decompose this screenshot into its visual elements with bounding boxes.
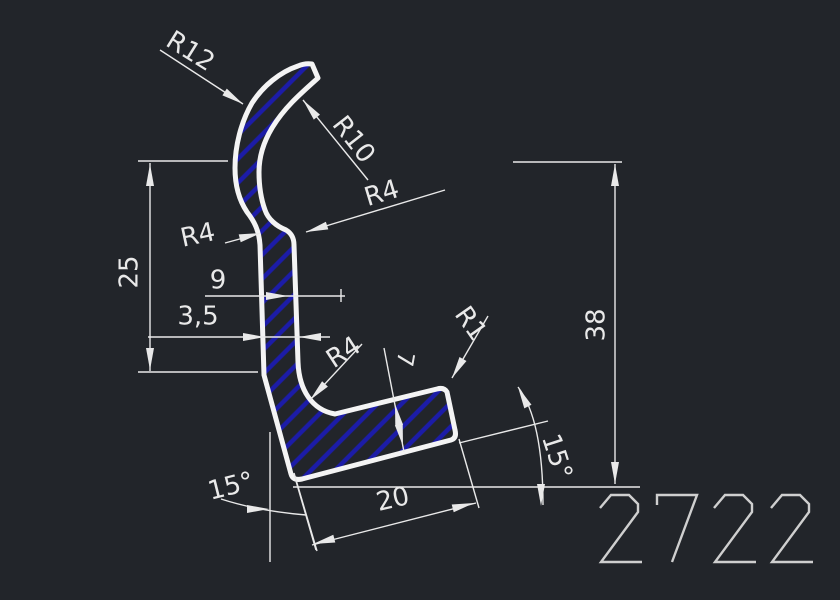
dimension-3-5: 3,5	[148, 302, 330, 342]
arrowhead	[611, 164, 619, 186]
digit-2	[600, 495, 642, 562]
leader-r12: R12	[160, 25, 243, 104]
r1-label: R1	[448, 301, 492, 347]
arrowhead	[306, 222, 328, 232]
r10-label: R10	[326, 110, 381, 169]
profile-number: 2722	[600, 495, 813, 562]
leader-r4-left: R4	[178, 217, 261, 254]
leader-r4-top: R4	[306, 174, 445, 232]
leader-r10: R10	[303, 100, 381, 180]
arrowhead	[222, 89, 243, 104]
drawing-svg: 25 38 9 3,5 R4 R4 R10	[0, 0, 840, 600]
digit-7	[657, 495, 697, 562]
arrowhead	[452, 357, 467, 378]
arrowhead	[518, 387, 532, 408]
dim-9-label: 9	[210, 266, 227, 296]
arrowhead	[299, 333, 321, 341]
leader-r4-foot: R4	[310, 331, 366, 400]
digit-2	[771, 495, 813, 562]
extension-line	[294, 473, 317, 551]
arrowhead	[611, 462, 619, 484]
arrowhead	[146, 348, 154, 370]
extension-line	[459, 439, 479, 508]
cad-canvas: 25 38 9 3,5 R4 R4 R10	[0, 0, 840, 600]
arrowhead	[313, 535, 335, 544]
angle-15-left-label: 15°	[205, 466, 257, 506]
angle-arc	[221, 499, 306, 515]
dim-25-label: 25	[115, 255, 145, 288]
dim-3-5-label: 3,5	[177, 302, 218, 332]
arrowhead	[452, 503, 474, 512]
leader-r1: R1	[448, 301, 492, 378]
dim-20-label: 20	[373, 481, 412, 518]
arrowhead	[146, 164, 154, 186]
dim-7-label: 7	[390, 350, 418, 369]
arrowhead	[537, 484, 545, 506]
arrowhead	[303, 100, 320, 120]
r4-left-label: R4	[178, 217, 218, 254]
digit-2	[714, 495, 756, 562]
arrowhead	[247, 505, 269, 513]
angle-15-right: 15°	[459, 387, 578, 506]
dim-38-label: 38	[582, 308, 612, 341]
